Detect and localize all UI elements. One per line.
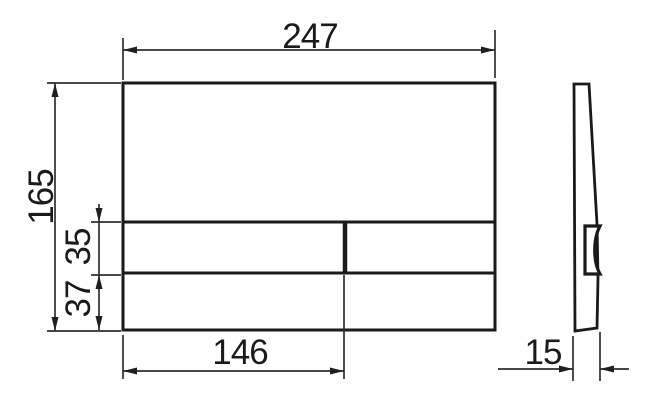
dim-label-button-row-height: 35 (59, 229, 98, 266)
dimension-plate-thickness: 15 (498, 332, 629, 381)
side-view (574, 84, 600, 331)
arrowhead-left (123, 47, 137, 54)
arrowhead-up (52, 83, 59, 97)
arrowhead-right (481, 47, 495, 54)
dim-label-plate-width: 247 (282, 17, 337, 56)
dimension-band-heights: 35 37 (59, 204, 121, 330)
arrowhead-left (600, 366, 614, 373)
dim-label-large-button-width: 146 (212, 333, 267, 372)
drawing-canvas: 247 165 35 37 14 (0, 0, 664, 415)
arrowhead-down (96, 208, 103, 222)
dimension-plate-width: 247 (123, 17, 495, 80)
dim-label-plate-thickness: 15 (525, 333, 562, 372)
arrowhead-right (330, 368, 344, 375)
arrowhead-down (52, 317, 59, 331)
technical-drawing: 247 165 35 37 14 (0, 0, 664, 415)
plate-outline (123, 83, 495, 330)
side-profile-outline (574, 84, 598, 331)
front-view (123, 83, 495, 330)
arrowhead-left (123, 368, 137, 375)
dim-label-plate-height: 165 (22, 169, 61, 224)
dim-label-bottom-band-height: 37 (59, 281, 98, 318)
